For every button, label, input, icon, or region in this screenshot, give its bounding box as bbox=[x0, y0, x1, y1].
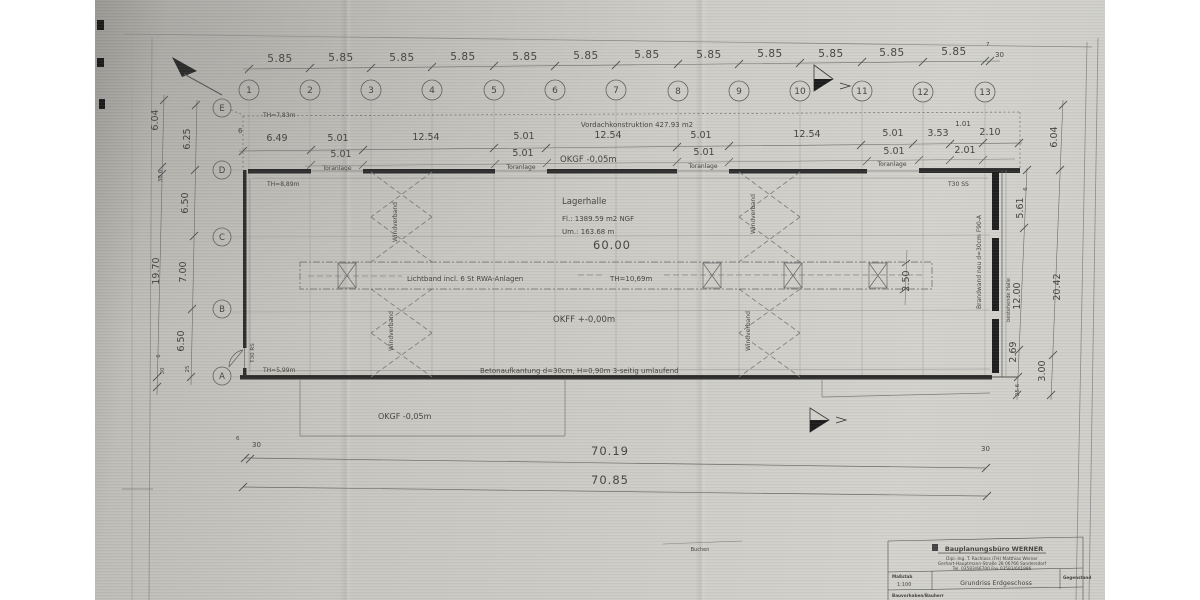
th-label: TH=5,99m bbox=[262, 367, 296, 374]
dim: 25.6 bbox=[1015, 383, 1021, 396]
dim: 12.54 bbox=[594, 130, 621, 141]
axis-number: 6 bbox=[552, 86, 558, 96]
dim-585: 5.85 bbox=[757, 48, 782, 60]
dim-585: 5.85 bbox=[512, 51, 537, 63]
axis-number: 1 bbox=[246, 86, 252, 96]
lichtband-label: Lichtband incl. 6 St RWA-Anlagen bbox=[407, 275, 523, 283]
binder-marks bbox=[97, 20, 105, 109]
dim: 5.01 bbox=[512, 148, 533, 159]
brandwand-firewall: Brandwand neu d=30cm F90-A bestehende Ha… bbox=[947, 170, 1012, 377]
dim-lichtband-height: 2.50 bbox=[901, 270, 912, 291]
dim-585: 5.85 bbox=[389, 52, 414, 64]
dim: 6.50 bbox=[176, 330, 187, 351]
titleblock-scale-label: Maßstab bbox=[892, 574, 912, 579]
dim-585: 5.85 bbox=[573, 50, 598, 62]
titleblock-line3: Tel. 03583/66700 Fax 03583/601986 bbox=[952, 566, 1032, 572]
dim: 6.04 bbox=[150, 109, 161, 130]
toranlage-label: Toranlage bbox=[876, 161, 906, 168]
t30rs-door-label: T30 RS bbox=[250, 343, 256, 364]
dim-585: 5.85 bbox=[941, 46, 966, 58]
th-label: TH=8,89m bbox=[266, 181, 300, 188]
toranlage-label: Toranlage bbox=[505, 164, 535, 171]
dim: 3.53 bbox=[927, 128, 948, 139]
dim: 20.42 bbox=[1052, 273, 1063, 300]
dim: 30.6 bbox=[158, 169, 164, 182]
dim: 5.01 bbox=[327, 133, 348, 144]
axis-number: 10 bbox=[794, 87, 806, 97]
dim-585: 5.85 bbox=[450, 51, 475, 63]
titleblock-drawing-title: Grundriss Erdgeschoss bbox=[960, 580, 1032, 587]
entry-door: T30 RS bbox=[229, 343, 256, 368]
dim: 19.70 bbox=[151, 257, 162, 284]
dim-wall-offset: 30 bbox=[995, 51, 1004, 59]
dim: 5.61 bbox=[1015, 197, 1026, 218]
dim-overall-outer: 70.85 bbox=[591, 473, 629, 487]
scanned-floorplan-photo: 5.85 5.85 5.85 5.85 5.85 5.85 5.85 5.85 … bbox=[0, 0, 1200, 600]
dim: 2.01 bbox=[954, 145, 975, 156]
dim: 5.01 bbox=[690, 130, 711, 141]
dim: 12.54 bbox=[793, 129, 820, 140]
windverband-label: Windverband bbox=[745, 311, 752, 351]
dim-585: 5.85 bbox=[818, 48, 843, 60]
dim-585: 5.85 bbox=[267, 53, 292, 65]
dim: 2.69 bbox=[1008, 341, 1019, 362]
dim: 6.49 bbox=[266, 133, 287, 144]
apron-outline bbox=[300, 380, 990, 436]
okgf-top-label: OKGF -0,05m bbox=[560, 155, 617, 165]
titleblock-scale-value: 1:100 bbox=[897, 582, 911, 588]
dim: 5.01 bbox=[693, 147, 714, 158]
dim-585: 5.85 bbox=[634, 49, 659, 61]
axis-letter: D bbox=[219, 166, 226, 176]
dim: 6 bbox=[1023, 187, 1029, 191]
axis-letter: C bbox=[219, 233, 225, 243]
th-label: TH=7,83m bbox=[262, 112, 296, 119]
windverband-label: Windverband bbox=[750, 194, 757, 234]
axis-number: 2 bbox=[307, 86, 313, 96]
sheet-frame bbox=[122, 0, 1098, 600]
dim-585: 5.85 bbox=[879, 47, 904, 59]
dim: 6.25 bbox=[182, 128, 193, 149]
axis-number: 13 bbox=[979, 88, 990, 98]
okgf-bottom-label: OKGF -0,05m bbox=[378, 412, 432, 421]
hall-name: Lagerhalle bbox=[562, 197, 606, 207]
dim: 6 bbox=[156, 354, 162, 358]
windverband-label: Windverband bbox=[388, 311, 395, 351]
dim: 6.50 bbox=[180, 192, 191, 213]
north-arrow-icon bbox=[172, 57, 222, 95]
axis-letter: A bbox=[219, 372, 225, 382]
brandwand-label: Brandwand neu d=30cm F90-A bbox=[976, 214, 983, 309]
dim-offset-6: 6 bbox=[238, 127, 243, 135]
titleblock-bottom-label: Bauvorhaben/Bauherr bbox=[892, 593, 945, 598]
dim: 7.00 bbox=[178, 261, 189, 282]
axis-number: 9 bbox=[736, 87, 742, 97]
t30ss-door-label: T30 SS bbox=[947, 181, 969, 188]
axis-letter: B bbox=[219, 305, 225, 315]
axis-letter: E bbox=[219, 104, 224, 114]
bestehende-halle-label: bestehende Halle bbox=[1006, 278, 1012, 322]
dim: 12.54 bbox=[412, 132, 439, 143]
hall-length-dim: 60.00 bbox=[593, 238, 631, 252]
toranlage-label: Toranlage bbox=[687, 163, 717, 170]
company-logo-icon bbox=[932, 544, 938, 551]
titleblock-right-label: Gegenstand bbox=[1063, 575, 1091, 580]
dim: 25 bbox=[185, 365, 191, 372]
axis-number: 12 bbox=[917, 88, 928, 98]
okff-label: OKFF +-0,00m bbox=[553, 315, 615, 325]
axis-number: 8 bbox=[675, 87, 681, 97]
hall-perimeter: Um.: 163.68 m bbox=[562, 228, 614, 236]
windverband-label: Windverband bbox=[392, 202, 399, 242]
dim-585: 5.85 bbox=[696, 49, 721, 61]
dim-585: 5.85 bbox=[328, 52, 353, 64]
top-dimension-chain: 5.85 5.85 5.85 5.85 5.85 5.85 5.85 5.85 … bbox=[243, 42, 1004, 73]
left-dimension-chains: 6.25 6.50 7.00 6.50 25 6.04 30.6 19.70 6… bbox=[150, 95, 200, 395]
axis-number: 5 bbox=[491, 86, 497, 96]
buchen-note: Buchen bbox=[691, 547, 710, 553]
grid-axis-column-numbers: 1 2 3 4 5 6 7 8 9 10 11 12 13 bbox=[246, 86, 991, 98]
lichtband-th-label: TH=10,69m bbox=[609, 275, 652, 283]
dim: 5.01 bbox=[513, 131, 534, 142]
axis-number: 3 bbox=[368, 86, 374, 96]
hall-area: Fl.: 1389.59 m2 NGF bbox=[562, 215, 634, 223]
dim: 1.01 bbox=[955, 120, 971, 128]
axis-number: 11 bbox=[856, 87, 867, 97]
dim: 30 bbox=[160, 367, 166, 374]
signature-note: Buchen bbox=[663, 541, 742, 553]
dim: 6.04 bbox=[1049, 126, 1060, 147]
dim: 2.10 bbox=[979, 127, 1000, 138]
dim-offset: 6 bbox=[236, 436, 240, 442]
title-block: Bauplanungsbüro WERNER Dipl.-Ing. T. Rac… bbox=[888, 537, 1091, 600]
bottom-dimension-chains: 6 30 70.19 70.85 30 bbox=[236, 436, 991, 500]
dim: 5.01 bbox=[330, 149, 351, 160]
betonaufkantung-label: Betonaufkantung d=30cm, H=0,90m 3-seitig… bbox=[480, 367, 679, 375]
dim-offset: 30 bbox=[252, 441, 261, 449]
dim-offset: 30 bbox=[981, 445, 990, 453]
dim: 5.01 bbox=[883, 146, 904, 157]
dim: 12.00 bbox=[1012, 282, 1023, 309]
dim: 5.01 bbox=[882, 128, 903, 139]
plan-annotations: Vordachkonstruktion 427.93 m2 TH=7,83m T… bbox=[262, 112, 693, 375]
dim-overall-inner: 70.19 bbox=[591, 444, 629, 458]
axis-number: 4 bbox=[429, 86, 435, 96]
floorplan-drawing: 5.85 5.85 5.85 5.85 5.85 5.85 5.85 5.85 … bbox=[0, 0, 1200, 600]
dim-tiny-7: 7 bbox=[986, 42, 990, 48]
titleblock-company: Bauplanungsbüro WERNER bbox=[945, 545, 1043, 553]
grid-axis-row-letters: E D C B A bbox=[219, 104, 226, 382]
vordach-label: Vordachkonstruktion 427.93 m2 bbox=[581, 121, 693, 129]
dim: 3.00 bbox=[1037, 360, 1048, 381]
axis-number: 7 bbox=[613, 86, 619, 96]
